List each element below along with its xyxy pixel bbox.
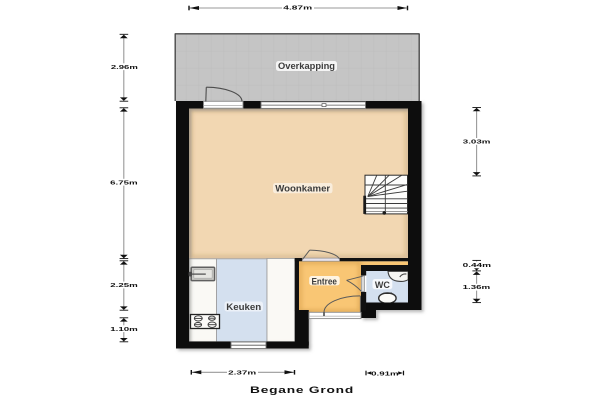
svg-text:WC: WC xyxy=(375,280,390,290)
svg-text:2.25m: 2.25m xyxy=(110,283,138,289)
svg-text:Overkapping: Overkapping xyxy=(278,61,335,71)
svg-text:1.10m: 1.10m xyxy=(110,327,138,333)
svg-text:Woonkamer: Woonkamer xyxy=(275,184,330,194)
svg-text:6.75m: 6.75m xyxy=(110,180,137,186)
svg-text:Entree: Entree xyxy=(311,277,337,287)
svg-text:0.91m: 0.91m xyxy=(371,371,399,377)
svg-text:3.03m: 3.03m xyxy=(463,139,491,145)
svg-text:2.96m: 2.96m xyxy=(111,65,138,71)
svg-text:Begane Grond: Begane Grond xyxy=(250,385,354,395)
svg-text:1.36m: 1.36m xyxy=(463,285,491,291)
svg-text:0.44m: 0.44m xyxy=(463,263,491,269)
svg-text:2.37m: 2.37m xyxy=(228,370,256,376)
svg-text:4.87m: 4.87m xyxy=(283,5,312,11)
svg-text:Keuken: Keuken xyxy=(226,302,261,312)
